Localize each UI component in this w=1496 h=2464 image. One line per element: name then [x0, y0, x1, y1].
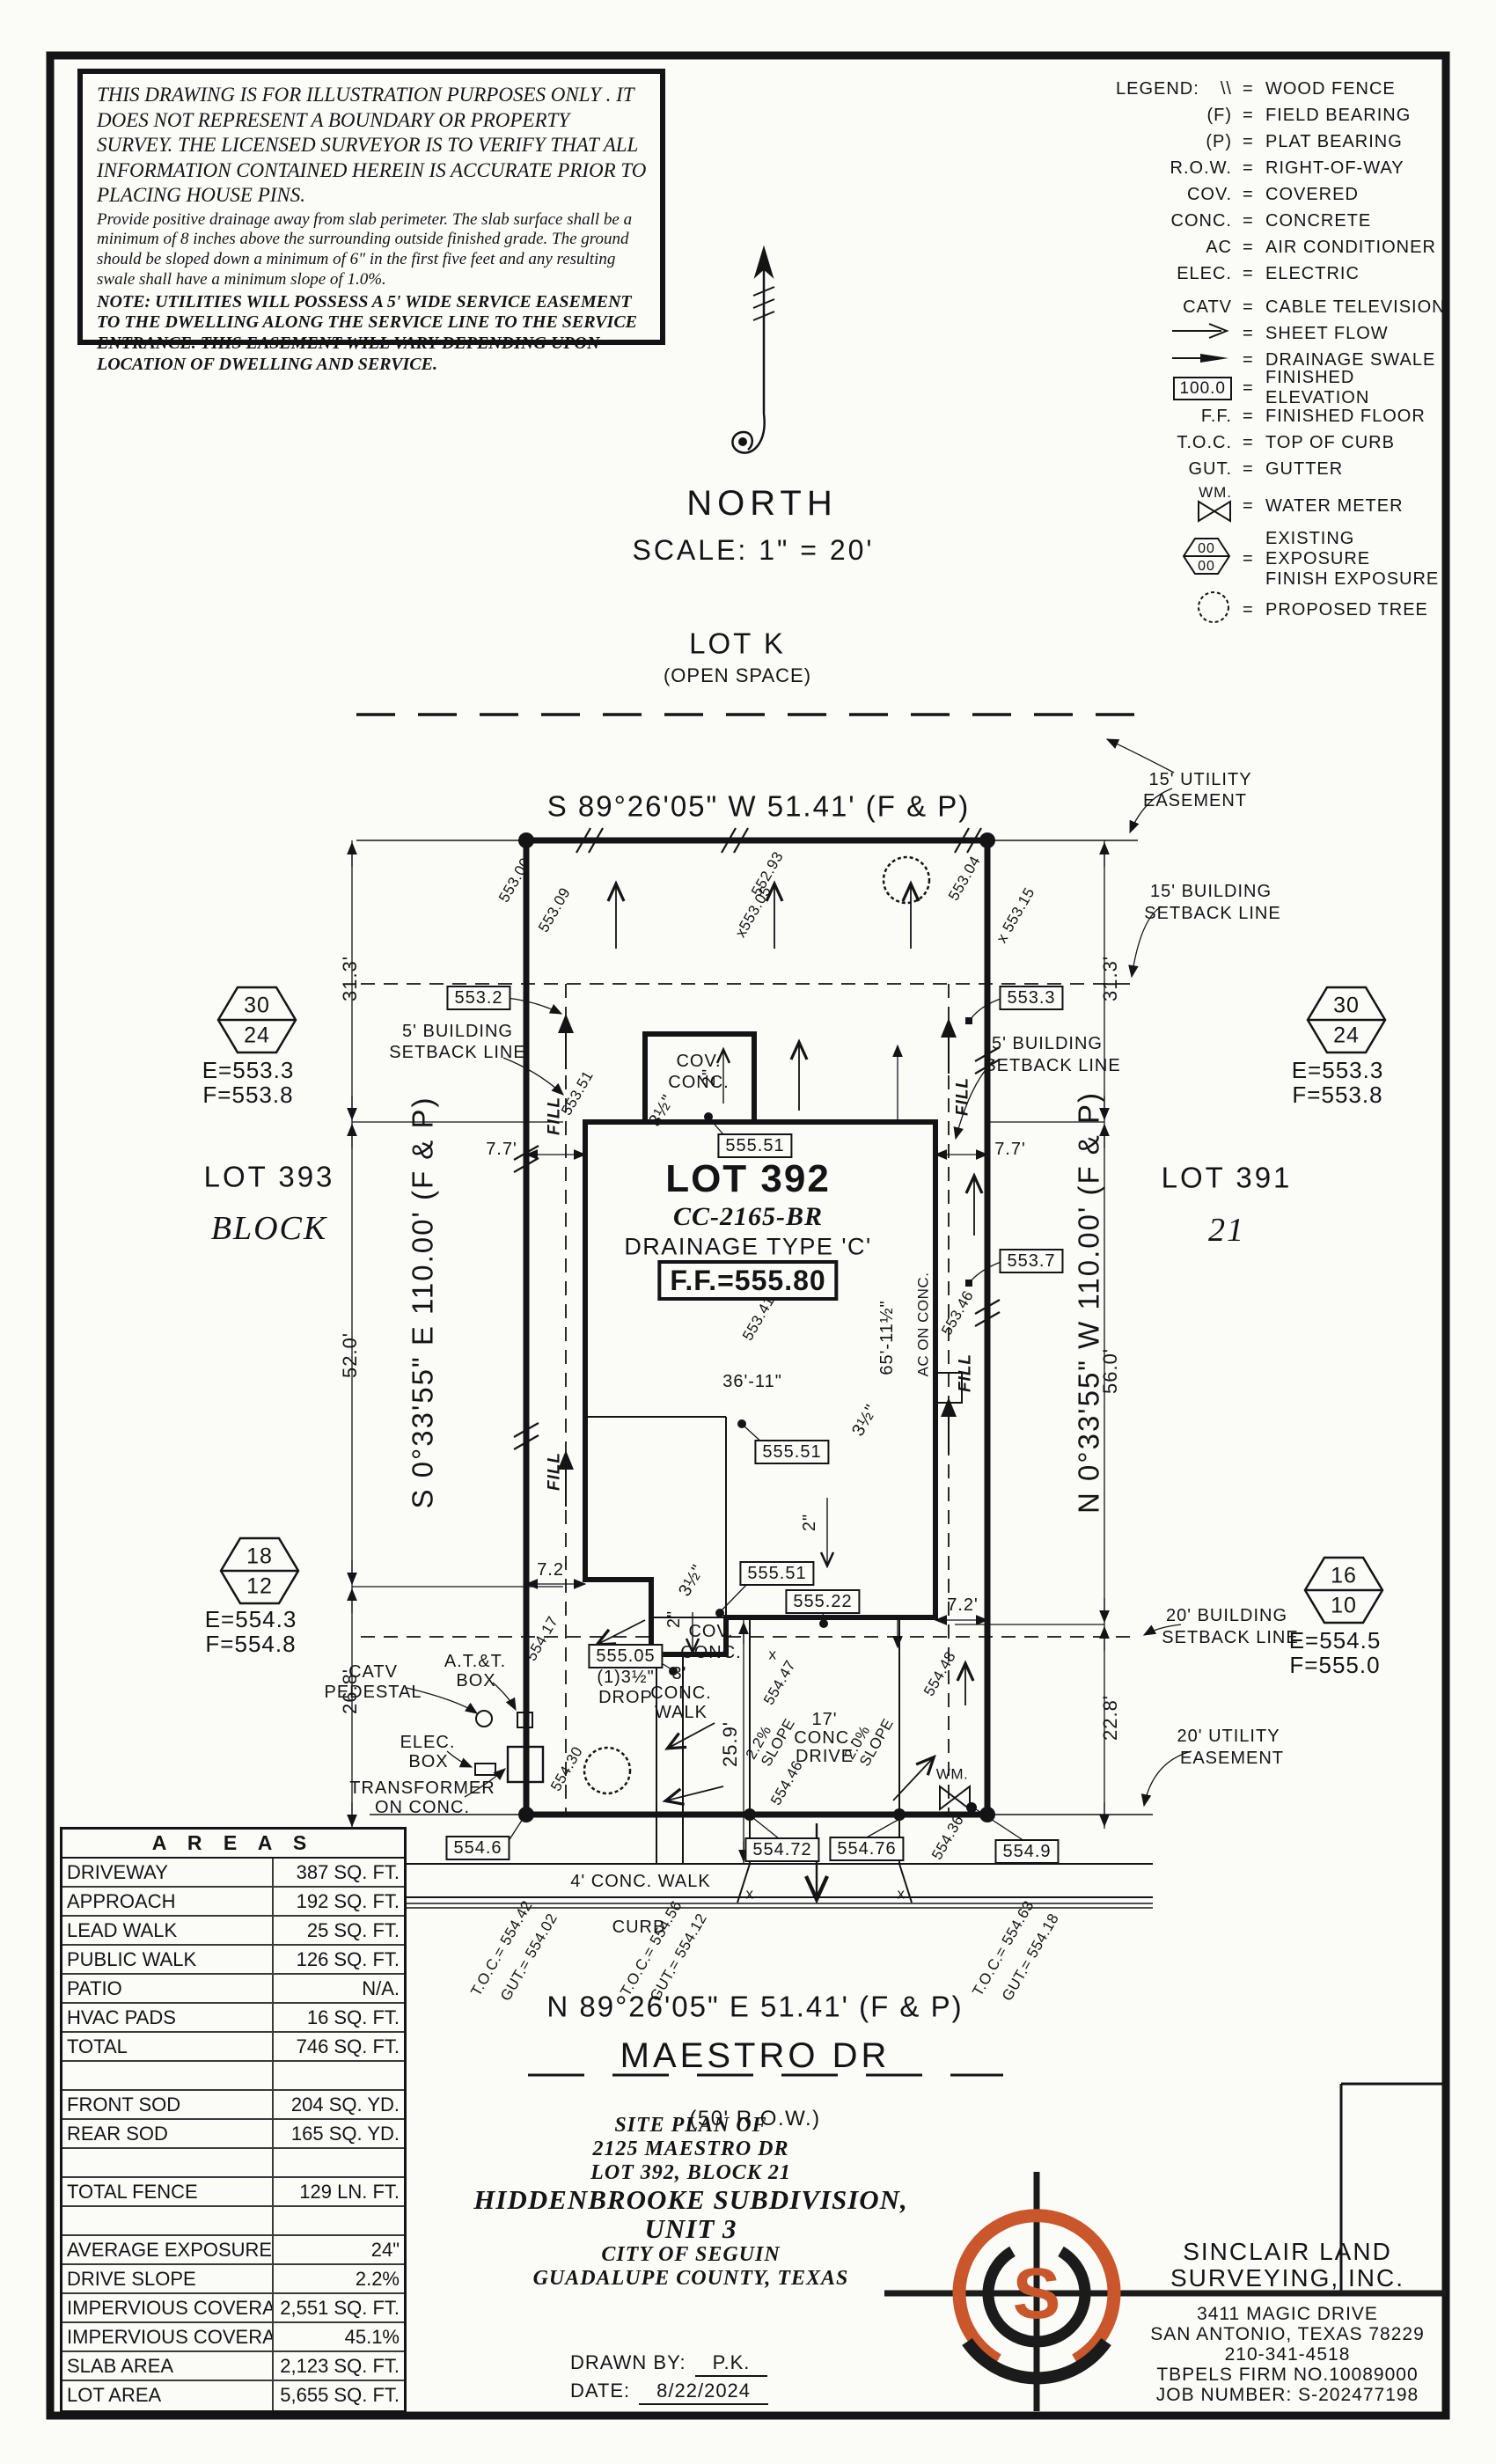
legend-desc: CONCRETE: [1265, 211, 1371, 231]
open-space-label: (OPEN SPACE): [664, 666, 811, 686]
plan-label: FILL: [955, 1077, 972, 1116]
plan-label: S 0°33'55" E 110.00' (F & P): [408, 1096, 437, 1509]
plan-label: WM.: [936, 1767, 968, 1782]
legend-desc: PLAT BEARING: [1265, 132, 1403, 152]
plan-label: F.F.=555.80: [657, 1260, 838, 1301]
legend-symbol: (F): [1109, 106, 1243, 126]
areas-row-value: 5,655 SQ. FT.: [274, 2381, 404, 2410]
title-block: SITE PLAN OF2125 MAESTRO DRLOT 392, BLOC…: [422, 2114, 959, 2291]
areas-table-row: IMPERVIOUS COVERAGE %45.1%: [62, 2323, 404, 2352]
legend-equals: =: [1243, 106, 1265, 126]
legend-desc: FINISHED FLOOR: [1265, 407, 1426, 427]
plan-label: 7.7': [994, 1140, 1026, 1158]
drawn-by-label: DRAWN BY:: [570, 2351, 686, 2373]
legend-symbol: GUT.: [1109, 459, 1243, 480]
areas-row-value: [274, 2062, 404, 2089]
plan-label: LOT 392: [665, 1160, 831, 1199]
legend-symbol: ELEC.: [1109, 264, 1243, 284]
areas-row-label: PUBLIC WALK: [62, 1946, 274, 1973]
plan-label: E=553.3: [202, 1059, 295, 1082]
legend-equals: =: [1243, 238, 1265, 258]
site-plan-page: S THIS DRAWING IS FOR ILLUSTRATION PURPO…: [0, 0, 1496, 2464]
legend-desc: RIGHT-OF-WAY: [1265, 158, 1404, 179]
plan-label: F=555.0: [1289, 1654, 1380, 1676]
legend-equals: =: [1243, 324, 1265, 344]
company-name-line1: SINCLAIR LAND: [1133, 2239, 1441, 2265]
legend-symbol: [1109, 350, 1243, 370]
legend-symbol: COV.: [1109, 185, 1243, 205]
areas-row-value: 204 SQ. YD.: [274, 2091, 404, 2118]
legend-desc: WATER METER: [1265, 496, 1404, 517]
company-address-line: JOB NUMBER: S-202477198: [1133, 2385, 1441, 2405]
areas-row-label: [62, 2149, 274, 2176]
plan-label: 31.3': [341, 956, 360, 1001]
legend-desc: CABLE TELEVISION: [1265, 297, 1446, 318]
plan-label: N 89°26'05" E 51.41' (F & P): [546, 1992, 963, 2021]
drawn-by-value: P.K.: [695, 2351, 768, 2377]
plan-label: WALK: [655, 1704, 708, 1721]
plan-label: 3': [672, 1665, 687, 1683]
plan-label: x: [769, 1647, 777, 1662]
plan-label: CATV: [348, 1663, 398, 1681]
plan-label: 7.7': [486, 1140, 517, 1158]
areas-row-label: HVAC PADS: [62, 2004, 274, 2031]
plan-label: MAESTRO DR: [620, 2038, 891, 2073]
plan-label: 554.6: [445, 1836, 510, 1860]
utilities-note: NOTE: UTILITIES WILL POSSESS A 5' WIDE S…: [97, 292, 648, 375]
title-block-line: LOT 392, BLOCK 21: [422, 2161, 959, 2185]
plan-label: DRIVE: [796, 1748, 854, 1765]
areas-table-row: DRIVE SLOPE2.2%: [62, 2265, 404, 2294]
plan-label: 554.76: [829, 1837, 904, 1861]
legend-equals: =: [1243, 264, 1265, 284]
plan-label: (1)3½": [597, 1668, 654, 1686]
plan-label: x: [746, 1887, 754, 1902]
plan-label: EASEMENT: [1180, 1749, 1284, 1767]
plan-label: PEDESTAL: [325, 1683, 422, 1701]
areas-row-label: LOT AREA: [62, 2381, 274, 2410]
plan-label: 30: [244, 995, 270, 1017]
company-address-line: SAN ANTONIO, TEXAS 78229: [1133, 2324, 1441, 2344]
plan-label: ELEC.: [400, 1734, 456, 1751]
plan-label: F=554.8: [205, 1632, 296, 1655]
svg-text:00: 00: [1198, 559, 1215, 574]
legend-symbol: [1109, 321, 1243, 346]
legend-symbol: CATV: [1109, 297, 1243, 318]
scale-label: SCALE: 1" = 20': [632, 536, 874, 564]
areas-row-label: IMPERVIOUS COVERAGE %: [62, 2323, 274, 2350]
plan-label: 554.72: [744, 1837, 819, 1862]
plan-label: N 0°33'55" W 110.00' (F & P): [1074, 1091, 1104, 1514]
plan-label: 2": [665, 1610, 683, 1628]
areas-table-row: TOTAL FENCE129 LN. FT.: [62, 2178, 404, 2207]
plan-label: 25.9': [721, 1721, 740, 1767]
tree-icon: [884, 857, 929, 903]
plan-label: 7.2': [537, 1561, 568, 1579]
legend-symbol: T.O.C.: [1109, 433, 1243, 453]
plan-label: COV.: [688, 1623, 733, 1640]
water-meter-icon: [940, 1786, 970, 1809]
plan-label: 16: [1331, 1566, 1357, 1588]
plan-label: CONC.: [650, 1684, 711, 1702]
plan-label: CONC.: [668, 1074, 729, 1091]
svg-text:S: S: [1013, 2254, 1061, 2334]
title-block-line: HIDDENBROOKE SUBDIVISION,: [422, 2185, 959, 2214]
areas-table-row: SLAB AREA2,123 SQ. FT.: [62, 2352, 404, 2381]
areas-table-row: IMPERVIOUS COVERAGE2,551 SQ. FT.: [62, 2294, 404, 2323]
plan-label: FILL: [957, 1353, 974, 1392]
areas-row-label: APPROACH: [62, 1888, 274, 1915]
plan-label: 22.8': [1101, 1695, 1120, 1741]
date-value: 8/22/2024: [639, 2380, 768, 2405]
legend-desc: ELECTRIC: [1265, 264, 1360, 284]
title-block-line: CITY OF SEGUIN: [422, 2243, 959, 2267]
areas-table-row: DRIVEWAY387 SQ. FT.: [62, 1859, 404, 1888]
legend-desc: EXISTING EXPOSUREFINISH EXPOSURE: [1265, 529, 1457, 590]
company-address-line: TBPELS FIRM NO.10089000: [1133, 2365, 1441, 2385]
plan-label: A.T.&T.: [444, 1653, 506, 1670]
legend-desc: FINISHED ELEVATION: [1265, 368, 1457, 408]
areas-table-row: HVAC PADS16 SQ. FT.: [62, 2004, 404, 2033]
areas-table-row: TOTAL746 SQ. FT.: [62, 2033, 404, 2062]
legend-item: 0000=EXISTING EXPOSUREFINISH EXPOSURE: [1109, 530, 1457, 588]
plan-label: CURB: [612, 1918, 666, 1936]
legend-item: 100.0=FINISHED ELEVATION: [1109, 373, 1457, 403]
areas-table: A R E A S DRIVEWAY387 SQ. FT.APPROACH192…: [60, 1827, 407, 2413]
legend-symbol: R.O.W.: [1109, 158, 1243, 179]
plan-label: 65'-11½": [878, 1300, 896, 1375]
areas-row-value: 16 SQ. FT.: [274, 2004, 404, 2031]
areas-row-value: 746 SQ. FT.: [274, 2033, 404, 2060]
plan-label: 555.22: [785, 1589, 860, 1614]
plan-label: E=554.5: [1289, 1629, 1382, 1652]
legend-symbol: 0000: [1109, 534, 1243, 583]
plan-label: DRAINAGE TYPE 'C': [624, 1236, 871, 1259]
title-block-line: GUADALUPE COUNTY, TEXAS: [422, 2267, 959, 2291]
areas-row-value: 165 SQ. YD.: [274, 2120, 404, 2147]
plan-label: 31.3': [1101, 956, 1120, 1001]
legend-item: (P)=PLAT BEARING: [1109, 128, 1457, 155]
legend-symbol: AC: [1109, 238, 1243, 258]
legend-desc: AIR CONDITIONER: [1265, 238, 1436, 258]
title-block-line: UNIT 3: [422, 2214, 959, 2243]
areas-row-label: TOTAL: [62, 2033, 274, 2060]
areas-row-value: 129 LN. FT.: [274, 2178, 404, 2205]
legend-item: GUT.=GUTTER: [1109, 456, 1457, 482]
legend-symbol: F.F.: [1109, 407, 1243, 427]
plan-label: 30: [1333, 995, 1360, 1017]
plan-label: SETBACK LINE: [1162, 1629, 1298, 1646]
legend-equals: =: [1243, 158, 1265, 179]
areas-row-label: SLAB AREA: [62, 2352, 274, 2380]
legend-equals: =: [1243, 132, 1265, 152]
legend-equals: =: [1243, 378, 1265, 399]
tree-icon: [584, 1748, 630, 1793]
areas-table-row: [62, 2062, 404, 2091]
legend-symbol: (P): [1109, 132, 1243, 152]
areas-table-row: [62, 2149, 404, 2178]
disclaimer-box: THIS DRAWING IS FOR ILLUSTRATION PURPOSE…: [77, 69, 665, 345]
areas-row-value: [274, 2207, 404, 2234]
plan-label: TRANSFORMER: [349, 1779, 495, 1797]
plan-label: 7.2': [947, 1596, 979, 1614]
areas-table-row: PATION/A.: [62, 1975, 404, 2004]
areas-row-label: FRONT SOD: [62, 2091, 274, 2118]
legend-item: =PROPOSED TREE: [1109, 588, 1457, 632]
company-address-line: 3411 MAGIC DRIVE: [1133, 2304, 1441, 2324]
legend-item: ELEC.=ELECTRIC: [1109, 260, 1457, 287]
plan-label: E=553.3: [1292, 1059, 1384, 1082]
plan-label: 21: [1208, 1214, 1245, 1247]
date-row: DATE:8/22/2024: [570, 2380, 768, 2405]
legend-item: F.F.=FINISHED FLOOR: [1109, 403, 1457, 429]
plan-label: 553.2: [446, 986, 510, 1010]
plan-label: 15' UTILITY: [1148, 771, 1251, 788]
areas-table-row: APPROACH192 SQ. FT.: [62, 1888, 404, 1917]
plan-label: 52.0': [341, 1332, 360, 1378]
plan-label: AC ON CONC.: [916, 1272, 931, 1377]
legend-desc: FIELD BEARING: [1265, 106, 1411, 126]
company-block: SINCLAIR LAND SURVEYING, INC. 3411 MAGIC…: [1133, 2239, 1441, 2405]
plan-label: E=554.3: [205, 1608, 297, 1631]
areas-row-label: [62, 2207, 274, 2234]
legend-item: T.O.C.=TOP OF CURB: [1109, 429, 1457, 456]
areas-table-title: A R E A S: [62, 1830, 404, 1859]
plan-label: F=553.8: [202, 1083, 293, 1106]
plan-label: SETBACK LINE: [984, 1057, 1120, 1074]
drainage-note: Provide positive drainage away from slab…: [97, 210, 648, 290]
svg-text:00: 00: [1198, 541, 1215, 556]
legend-equals: =: [1243, 350, 1265, 370]
plan-label: 2": [700, 1068, 718, 1086]
legend-equals: =: [1243, 600, 1265, 620]
plan-label: 12: [246, 1576, 273, 1598]
legend-item: R.O.W.=RIGHT-OF-WAY: [1109, 155, 1457, 181]
north-label: NORTH: [686, 486, 837, 521]
areas-row-label: IMPERVIOUS COVERAGE: [62, 2294, 274, 2321]
areas-table-row: FRONT SOD204 SQ. YD.: [62, 2091, 404, 2120]
legend-equals: =: [1243, 496, 1265, 517]
legend-equals: =: [1243, 433, 1265, 453]
legend-equals: =: [1243, 185, 1265, 205]
areas-row-value: 2.2%: [274, 2265, 404, 2292]
plan-label: FILL: [546, 1452, 563, 1491]
plan-label: 18: [246, 1546, 273, 1568]
areas-row-label: TOTAL FENCE: [62, 2178, 274, 2205]
plan-label: SETBACK LINE: [1144, 905, 1280, 922]
legend: LEGEND: \\=WOOD FENCE(F)=FIELD BEARING(P…: [1109, 76, 1457, 632]
areas-row-value: N/A.: [274, 1975, 404, 2002]
plan-label: BOX: [456, 1672, 495, 1690]
plan-label: 554.9: [994, 1839, 1059, 1864]
plan-label: FILL: [546, 1096, 563, 1135]
areas-row-value: 2,551 SQ. FT.: [274, 2294, 404, 2321]
plan-label: DROP: [598, 1689, 653, 1706]
title-block-line: SITE PLAN OF: [422, 2114, 959, 2138]
company-address-line: 210-341-4518: [1133, 2344, 1441, 2365]
plan-label: 555.51: [717, 1133, 792, 1158]
plan-label: 36'-11": [722, 1373, 782, 1390]
legend-item: COV.=COVERED: [1109, 181, 1457, 208]
disclaimer-text: THIS DRAWING IS FOR ILLUSTRATION PURPOSE…: [97, 83, 648, 209]
plan-label: EASEMENT: [1143, 792, 1247, 810]
plan-label: SETBACK LINE: [389, 1044, 525, 1061]
plan-label: BOX: [408, 1753, 448, 1771]
catv-pedestal-icon: [476, 1711, 492, 1727]
plan-label: 24: [1333, 1025, 1360, 1047]
areas-row-label: PATIO: [62, 1975, 274, 2002]
legend-item: CONC.=CONCRETE: [1109, 208, 1457, 234]
plan-label: CONC.: [794, 1729, 854, 1747]
north-arrow-icon: [732, 249, 774, 453]
areas-row-label: LEAD WALK: [62, 1917, 274, 1944]
plan-label: 553.7: [999, 1249, 1063, 1273]
elec-box-icon: [475, 1764, 495, 1775]
areas-table-row: REAR SOD165 SQ. YD.: [62, 2120, 404, 2149]
areas-row-label: REAR SOD: [62, 2120, 274, 2147]
areas-row-value: 45.1%: [274, 2323, 404, 2350]
areas-row-value: 192 SQ. FT.: [274, 1888, 404, 1915]
plan-label: 555.51: [754, 1440, 829, 1464]
plan-label: 17': [811, 1711, 837, 1728]
legend-item: (F)=FIELD BEARING: [1109, 102, 1457, 128]
plan-label: 5' BUILDING: [402, 1023, 513, 1040]
plan-label: 2": [801, 1514, 818, 1531]
plan-label: ON CONC.: [375, 1799, 470, 1816]
drawn-by-row: DRAWN BY:P.K.: [570, 2351, 767, 2377]
plan-label: LOT 393: [204, 1162, 335, 1192]
plan-label: S 89°26'05" W 51.41' (F & P): [547, 792, 971, 821]
plan-label: 5' BUILDING: [992, 1035, 1103, 1052]
plan-label: CC-2165-BR: [673, 1204, 823, 1230]
legend-desc: TOP OF CURB: [1265, 433, 1395, 453]
areas-row-label: DRIVEWAY: [62, 1859, 274, 1886]
areas-row-value: [274, 2149, 404, 2176]
lot-k-label: LOT K: [689, 629, 786, 658]
plan-label: CONC.: [680, 1644, 741, 1661]
areas-table-row: LOT AREA5,655 SQ. FT.: [62, 2381, 404, 2410]
areas-table-row: AVERAGE EXPOSURE24": [62, 2236, 404, 2265]
legend-item: WM.=WATER METER: [1109, 482, 1457, 530]
legend-desc: GUTTER: [1265, 459, 1343, 480]
legend-equals: =: [1243, 79, 1265, 99]
plan-label: 4' CONC. WALK: [570, 1873, 710, 1890]
plan-label: F=553.8: [1292, 1083, 1382, 1106]
areas-row-value: 126 SQ. FT.: [274, 1946, 404, 1973]
legend-title: LEGEND:: [1116, 79, 1199, 99]
areas-row-value: 25 SQ. FT.: [274, 1917, 404, 1944]
legend-symbol: WM.: [1109, 485, 1243, 528]
legend-equals: =: [1243, 211, 1265, 231]
plan-label: 56.0': [1101, 1348, 1120, 1394]
legend-equals: =: [1243, 297, 1265, 318]
legend-symbol: 100.0: [1109, 378, 1243, 399]
plan-label: 15' BUILDING: [1150, 883, 1272, 900]
title-block-line: 2125 MAESTRO DR: [422, 2138, 959, 2161]
legend-desc: WOOD FENCE: [1265, 79, 1396, 99]
areas-row-value: 24": [274, 2236, 404, 2263]
legend-item: =SHEET FLOW: [1109, 320, 1457, 347]
plan-label: x: [898, 1887, 906, 1902]
plan-label: 553.3: [999, 986, 1063, 1010]
legend-symbol: [1109, 589, 1243, 631]
legend-item: CATV=CABLE TELEVISION: [1109, 294, 1457, 320]
legend-item: AC=AIR CONDITIONER: [1109, 234, 1457, 260]
company-name-line2: SURVEYING, INC.: [1133, 2265, 1441, 2292]
plan-label: 20' BUILDING: [1166, 1607, 1287, 1624]
plan-label: 20' UTILITY: [1177, 1727, 1280, 1745]
areas-row-label: AVERAGE EXPOSURE: [62, 2236, 274, 2263]
areas-row-value: 2,123 SQ. FT.: [274, 2352, 404, 2380]
areas-table-row: [62, 2207, 404, 2236]
areas-row-label: DRIVE SLOPE: [62, 2265, 274, 2292]
plan-label: 10: [1331, 1595, 1357, 1617]
plan-label: 555.51: [739, 1561, 814, 1586]
legend-equals: =: [1243, 549, 1265, 569]
areas-table-row: LEAD WALK25 SQ. FT.: [62, 1917, 404, 1946]
plan-label: 555.05: [588, 1644, 663, 1668]
legend-desc: COVERED: [1265, 185, 1359, 205]
legend-desc: PROPOSED TREE: [1265, 600, 1428, 620]
areas-table-row: PUBLIC WALK126 SQ. FT.: [62, 1946, 404, 1975]
date-label: DATE:: [570, 2380, 630, 2402]
areas-row-value: 387 SQ. FT.: [274, 1859, 404, 1886]
legend-equals: =: [1243, 459, 1265, 480]
legend-symbol: CONC.: [1109, 211, 1243, 231]
legend-equals: =: [1243, 407, 1265, 427]
legend-desc: SHEET FLOW: [1265, 324, 1389, 344]
plan-label: LOT 391: [1162, 1163, 1293, 1192]
plan-label: BLOCK: [211, 1212, 327, 1245]
plan-label: 24: [244, 1025, 270, 1047]
areas-row-label: [62, 2062, 274, 2089]
